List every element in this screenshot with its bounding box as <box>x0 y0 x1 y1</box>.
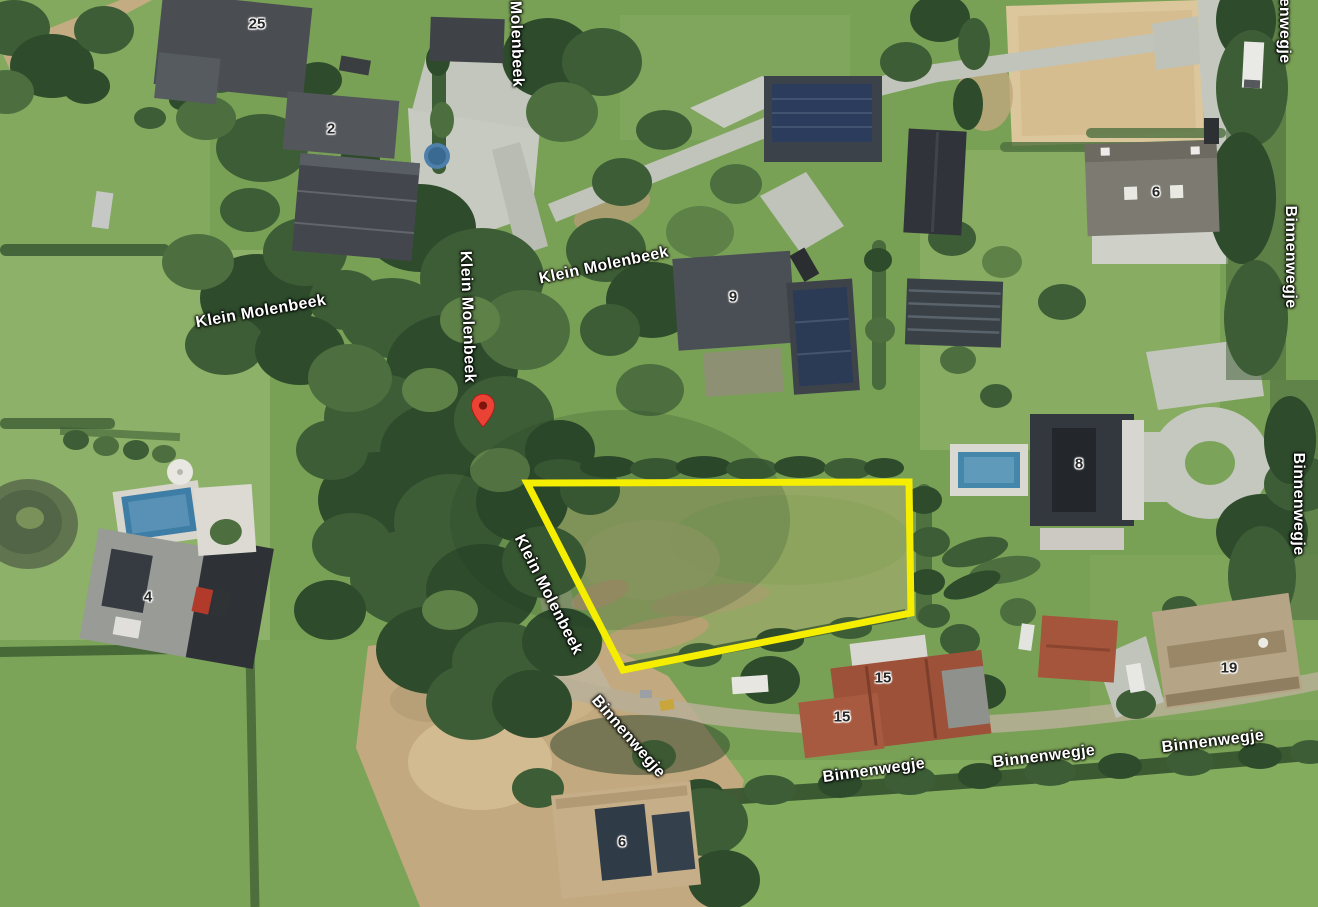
building-6-north <box>1084 140 1219 237</box>
satellite-map[interactable]: MolenbeekKlein MolenbeekKlein MolenbeekK… <box>0 0 1318 907</box>
building-2 <box>283 91 400 159</box>
building-6-south <box>551 781 701 899</box>
building-solar-house <box>764 76 882 162</box>
satellite-imagery <box>0 0 1318 907</box>
map-pin[interactable] <box>472 394 495 427</box>
building-19 <box>1152 593 1302 709</box>
